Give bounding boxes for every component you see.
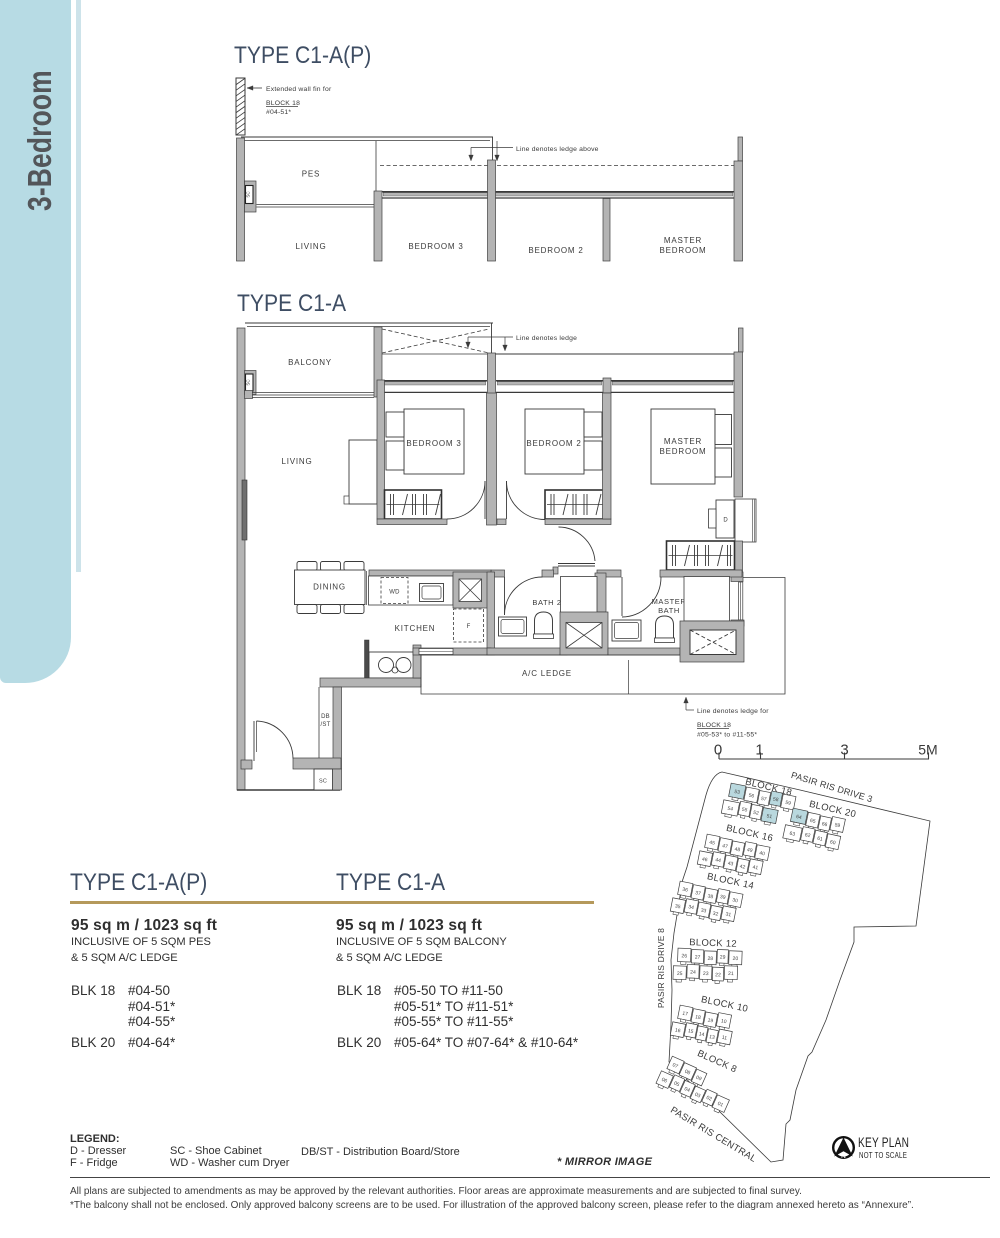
svg-text:MASTER: MASTER: [664, 236, 702, 245]
svg-text:KITCHEN: KITCHEN: [395, 624, 436, 633]
svg-text:BLOCK 14: BLOCK 14: [706, 871, 755, 892]
svg-text:F: F: [467, 624, 471, 630]
svg-text:26: 26: [681, 953, 687, 959]
svg-text:WD: WD: [389, 590, 400, 596]
svg-text:1: 1: [755, 742, 763, 759]
svg-text:BEDROOM: BEDROOM: [660, 246, 707, 255]
svg-text:SC: SC: [246, 379, 251, 386]
svg-text:SC: SC: [319, 779, 327, 785]
svg-text:Extended wall fin for: Extended wall fin for: [266, 86, 332, 93]
svg-text:NOT TO SCALE: NOT TO SCALE: [859, 1151, 907, 1160]
svg-text:MASTER: MASTER: [652, 597, 687, 606]
svg-text:LIVING: LIVING: [295, 242, 326, 251]
svg-text:#04-51*: #04-51*: [266, 109, 291, 116]
svg-text:BEDROOM 2: BEDROOM 2: [528, 246, 583, 255]
svg-text:27: 27: [695, 955, 701, 961]
svg-text:23: 23: [703, 971, 709, 977]
svg-text:Line denotes ledge above: Line denotes ledge above: [516, 146, 599, 153]
svg-text:D: D: [723, 518, 728, 524]
svg-text:BATH 2: BATH 2: [532, 598, 561, 607]
svg-text:DB: DB: [321, 714, 330, 720]
svg-text:PES: PES: [302, 170, 320, 179]
svg-text:Line denotes ledge: Line denotes ledge: [516, 335, 577, 342]
svg-text:5M: 5M: [918, 742, 937, 758]
svg-text:BLOCK 10: BLOCK 10: [700, 994, 749, 1015]
svg-text:22: 22: [715, 972, 721, 978]
svg-text:LIVING: LIVING: [281, 457, 312, 466]
svg-text:24: 24: [690, 970, 696, 976]
svg-text:BLOCK 18: BLOCK 18: [697, 722, 731, 729]
svg-text:BLOCK 18: BLOCK 18: [266, 100, 300, 107]
svg-text:PASIR RIS DRIVE 8: PASIR RIS DRIVE 8: [656, 928, 666, 1008]
svg-text:0: 0: [714, 742, 722, 759]
svg-text:28: 28: [707, 956, 713, 962]
svg-text:BALCONY: BALCONY: [288, 358, 332, 367]
svg-text:DINING: DINING: [313, 583, 346, 592]
svg-text:BLOCK 12: BLOCK 12: [689, 937, 737, 950]
svg-text:25: 25: [677, 971, 683, 977]
svg-text:#05-53* to #11-55*: #05-53* to #11-55*: [697, 732, 757, 739]
svg-text:29: 29: [720, 955, 726, 961]
svg-text:3: 3: [840, 742, 848, 759]
svg-text:BEDROOM: BEDROOM: [660, 447, 707, 456]
svg-text:KEY PLAN: KEY PLAN: [858, 1135, 909, 1151]
svg-text:MASTER: MASTER: [664, 437, 702, 446]
svg-text:PASIR RIS DRIVE 3: PASIR RIS DRIVE 3: [790, 770, 874, 804]
svg-text:A/C LEDGE: A/C LEDGE: [522, 669, 572, 678]
svg-text:BATH: BATH: [658, 606, 680, 615]
svg-text:/ST: /ST: [321, 722, 331, 728]
svg-text:N: N: [841, 1153, 846, 1160]
svg-text:BEDROOM 3: BEDROOM 3: [408, 242, 463, 251]
svg-text:BEDROOM 3: BEDROOM 3: [406, 439, 461, 448]
svg-text:SC: SC: [246, 191, 251, 198]
svg-text:BEDROOM 2: BEDROOM 2: [526, 439, 581, 448]
svg-text:20: 20: [733, 956, 739, 962]
svg-text:PASIR RIS CENTRAL: PASIR RIS CENTRAL: [668, 1105, 758, 1165]
svg-text:Line denotes ledge for: Line denotes ledge for: [697, 708, 769, 715]
svg-text:21: 21: [728, 971, 734, 977]
